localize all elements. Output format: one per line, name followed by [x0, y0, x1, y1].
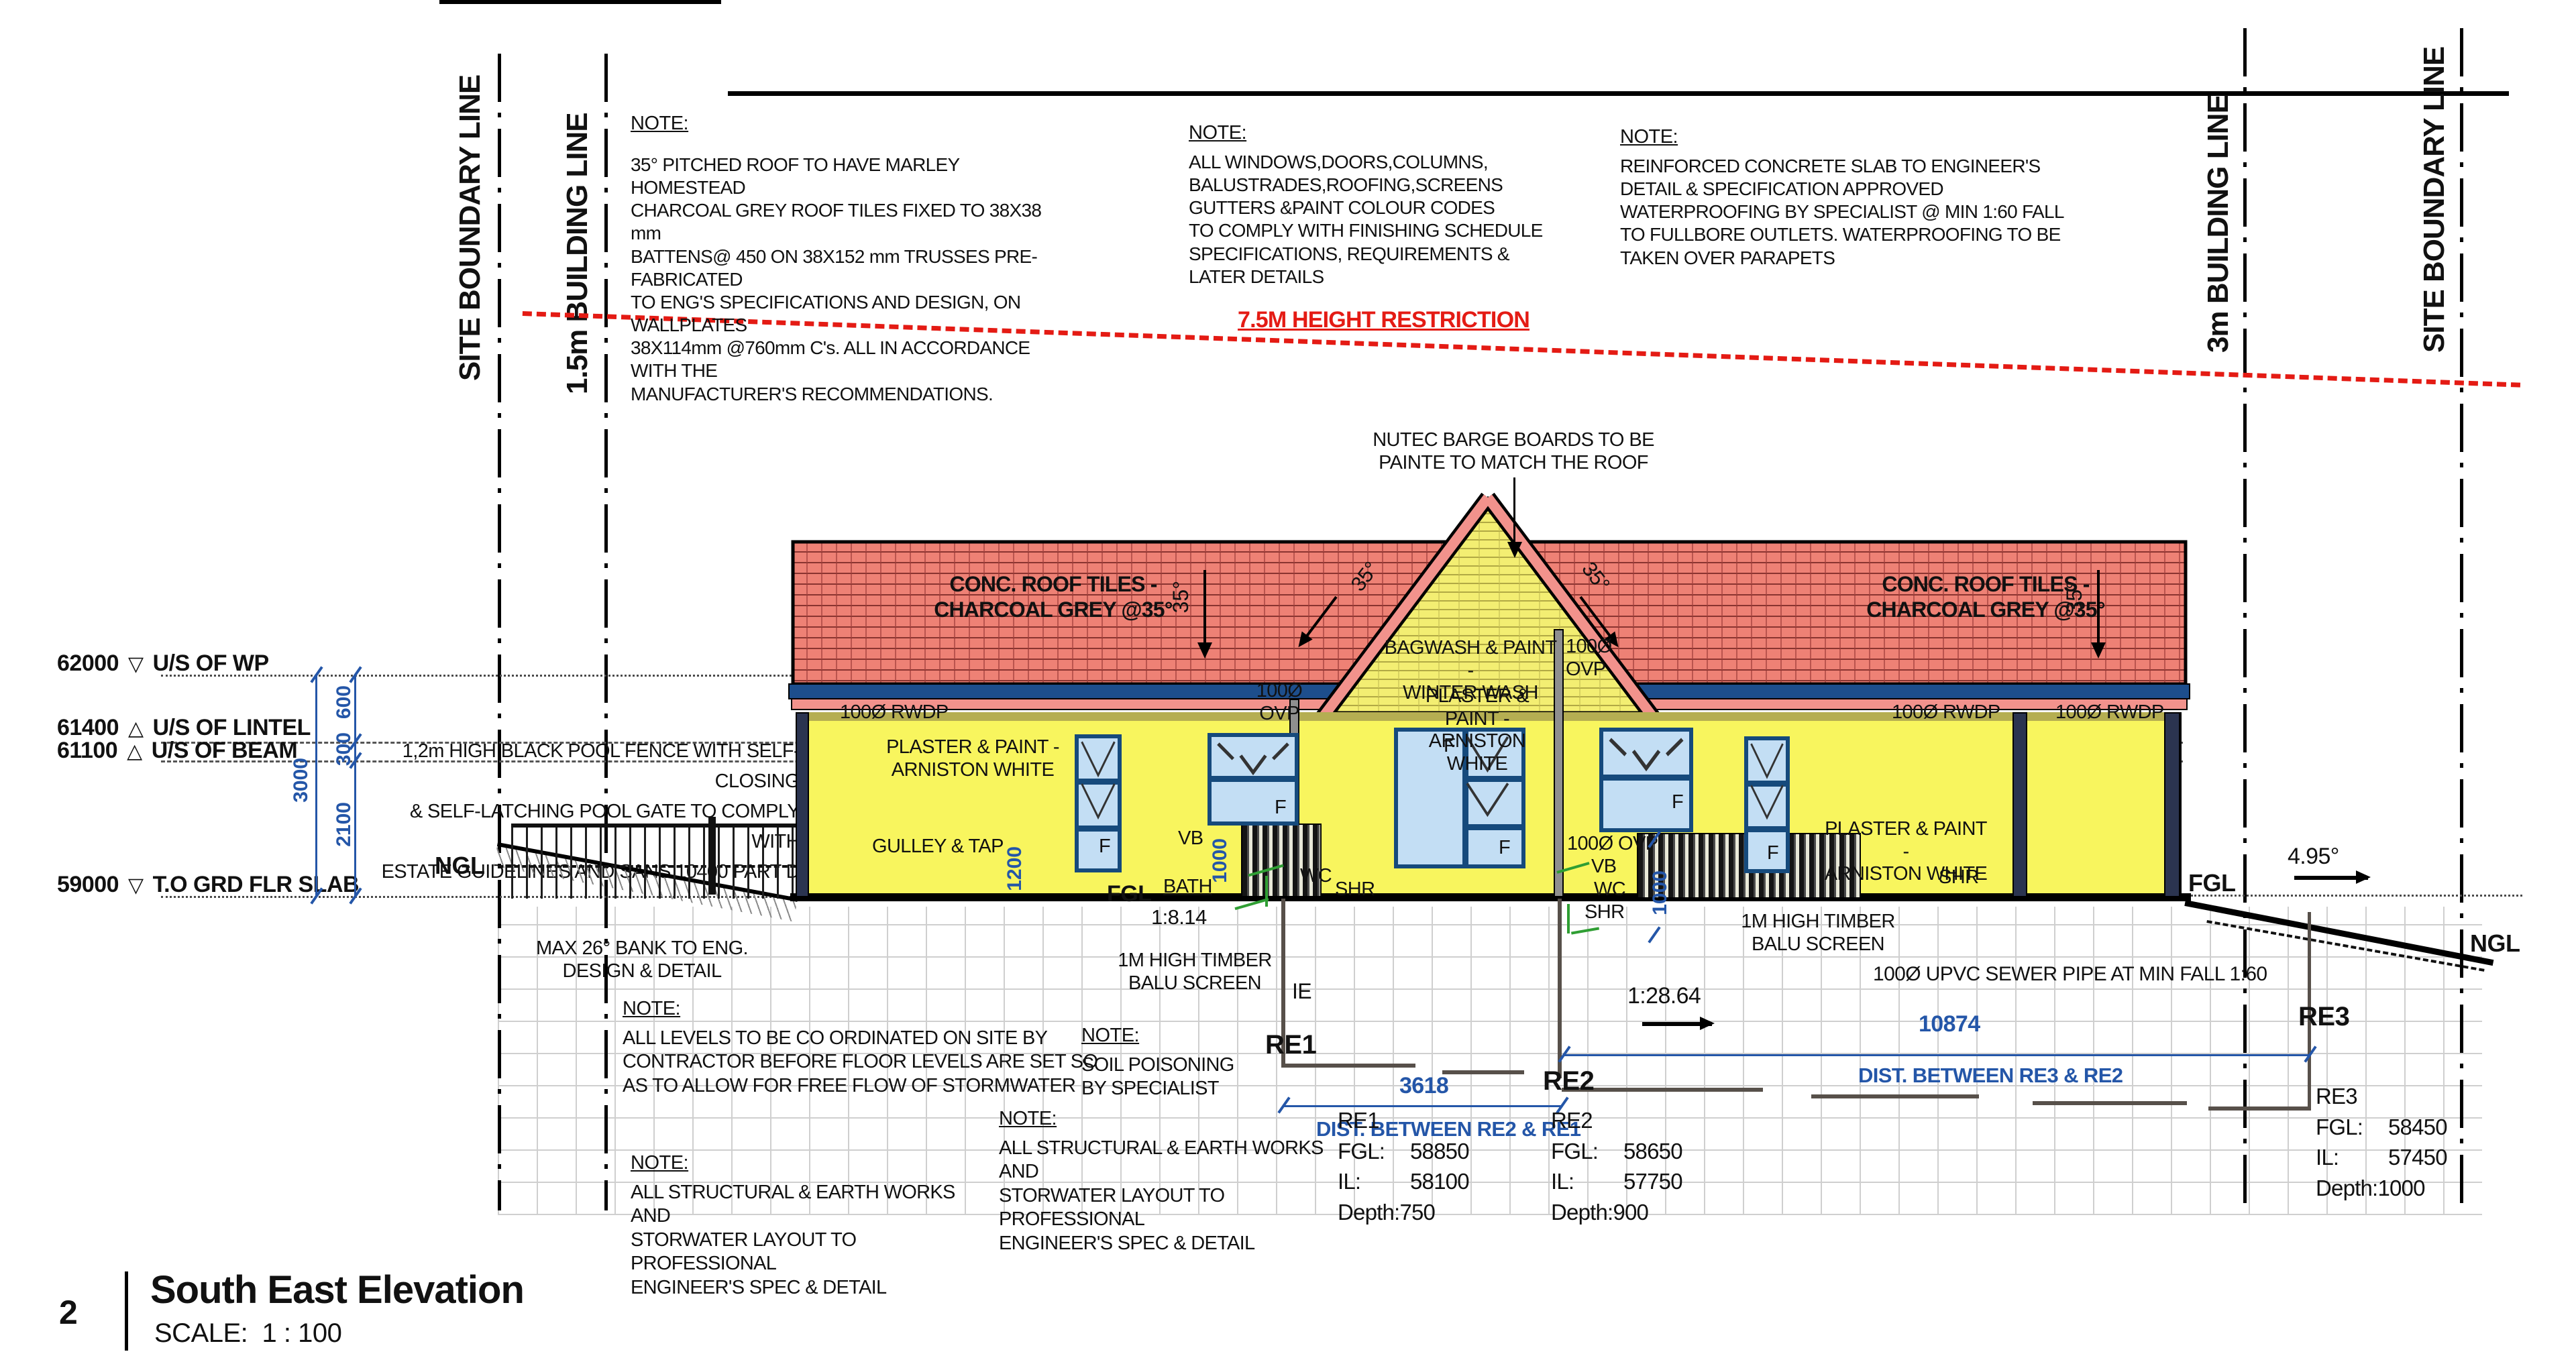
level-label: U/S OF BEAM [152, 738, 297, 763]
ie-label: IE [1292, 979, 1311, 1004]
note-slab-body: REINFORCED CONCRETE SLAB TO ENGINEER'S D… [1620, 155, 2090, 270]
window [1075, 734, 1122, 872]
re-depth: Depth:900 [1551, 1197, 1682, 1228]
building-line-left-label: 1.5m BUILDING LINE [561, 59, 594, 394]
plaster-label-left: PLASTER & PAINT - ARNISTON WHITE [872, 736, 1073, 781]
note-structural-body: ALL STRUCTURAL & EARTH WORKS AND STORWAT… [999, 1137, 1348, 1255]
rwdp-label: 100Ø RWDP [1892, 701, 2000, 724]
ngl-label-left: NGL [435, 852, 485, 880]
note-soil-body: SOIL POISONING BY SPECIALIST [1081, 1054, 1309, 1101]
level-value: 61400 [57, 715, 119, 740]
sewer-run [2208, 1106, 2309, 1111]
opening-mark [1218, 744, 1288, 773]
scale-label: SCALE: [154, 1318, 248, 1348]
building-line-right-label: 3m BUILDING LINE [2202, 31, 2235, 353]
drawing-scale: SCALE: 1 : 100 [154, 1318, 341, 1349]
dim-1200: 1200 [1004, 846, 1026, 891]
ovp-label: 100Ø OVP [1242, 680, 1316, 725]
level-row-wp: 62000▽U/S OF WP [57, 650, 269, 677]
waste-pipe [1265, 876, 1268, 907]
window-f-label: F [1275, 797, 1286, 819]
porch-column-rwdp [2012, 712, 2027, 897]
level-value: 62000 [57, 650, 119, 676]
fall-label: 1:8.14 [1151, 905, 1207, 929]
timber-screen-note: 1M HIGH TIMBER BALU SCREEN [1724, 911, 1912, 956]
roof-label-left: CONC. ROOF TILES - CHARCOAL GREY @35° [926, 571, 1181, 623]
re-il: IL:57750 [1551, 1166, 1682, 1197]
level-value: 61100 [57, 738, 117, 763]
nutec-note: NUTEC BARGE BOARDS TO BE PAINTE TO MATCH… [1373, 429, 1654, 474]
sewer-run [1811, 1094, 1979, 1098]
timber-screen-note: 1M HIGH TIMBER BALU SCREEN [1104, 950, 1285, 995]
elevation-drawing-sheet: SITE BOUNDARY LINE 1.5m BUILDING LINE 3m… [0, 0, 2576, 1362]
level-value: 59000 [57, 872, 119, 897]
window-f-label: F [1767, 842, 1778, 865]
re-name: RE2 [1551, 1105, 1682, 1136]
rwdp-label: 100Ø RWDP [840, 701, 949, 724]
window-f-label: F [1499, 837, 1510, 860]
fgl-line-right [2191, 895, 2522, 897]
arrow-head-icon [1197, 642, 1212, 659]
gulley-tap-label: GULLEY & TAP [872, 836, 1004, 858]
re-il: IL:58100 [1338, 1166, 1469, 1197]
site-boundary-line-left-label: SITE BOUNDARY LINE [453, 59, 487, 381]
note-slab-heading: NOTE: [1620, 126, 2090, 148]
note-structural-heading: NOTE: [631, 1152, 979, 1174]
nutec-leader [1513, 477, 1515, 555]
floor-slab-line [790, 893, 2191, 901]
re-depth: Depth:1000 [2316, 1173, 2447, 1204]
level-label: U/S OF WP [153, 650, 269, 676]
re-marker: RE3 [2298, 1002, 2349, 1032]
level-marker-up-icon: △ [119, 718, 153, 740]
re-fgl: FGL:58450 [2316, 1112, 2447, 1143]
window [1599, 728, 1693, 832]
note-levels-heading: NOTE: [623, 998, 1106, 1020]
dim-300: 300 [333, 732, 356, 766]
plaster-label-center: PLASTER & PAINT - ARNISTON WHITE [1397, 685, 1558, 776]
fence-post [708, 817, 716, 895]
level-row-beam: 61100△U/S OF BEAM [57, 738, 297, 764]
re2-data: RE2 FGL:58650 IL:57750 Depth:900 [1551, 1105, 1682, 1227]
note-roof: NOTE: 35° PITCHED ROOF TO HAVE MARLEY HO… [631, 113, 1073, 406]
note-windows-heading: NOTE: [1189, 122, 1578, 144]
dim-line-3000 [315, 675, 317, 896]
arrow-head-icon [1507, 542, 1522, 558]
shr-label: SHR [1585, 901, 1624, 924]
porch-column-rwdp [2164, 712, 2180, 897]
opening-mark [1751, 744, 1782, 817]
dim-1000: 1000 [1649, 870, 1672, 915]
arrow-head-icon [2356, 870, 2371, 884]
drawing-title: South East Elevation [150, 1267, 524, 1312]
note-roof-heading: NOTE: [631, 113, 1073, 135]
ovp-label: 100Ø OVP [1566, 636, 1633, 681]
max-bank-note: MAX 26° BANK TO ENG. DESIGN & DETAIL [498, 938, 786, 982]
fall-label: 1:28.64 [1627, 983, 1701, 1009]
site-boundary-line-left [498, 54, 501, 1210]
opening-mark [1610, 740, 1682, 769]
ovp-label: 100Ø OVP [1567, 833, 1658, 856]
level-label: T.O GRD FLR SLAB [153, 872, 359, 897]
title-divider [125, 1271, 128, 1351]
sheet-border-top-left [439, 0, 721, 4]
height-restriction-label: 7.5M HEIGHT RESTRICTION [1238, 307, 1529, 333]
sewer-riser [1558, 899, 1562, 1078]
wc-label: WC [1300, 865, 1332, 888]
re-marker: RE2 [1543, 1066, 1594, 1096]
dim-3000: 3000 [290, 758, 313, 803]
site-boundary-line-right [2460, 28, 2463, 1210]
site-boundary-line-right-label: SITE BOUNDARY LINE [2418, 31, 2451, 353]
dim-2100: 2100 [333, 802, 356, 847]
dim-10874: 10874 [1919, 1011, 1980, 1037]
ngl-label-right: NGL [2470, 929, 2520, 958]
note-soil: NOTE: SOIL POISONING BY SPECIALIST [1081, 1025, 1309, 1101]
note-windows-body: ALL WINDOWS,DOORS,COLUMNS, BALUSTRADES,R… [1189, 151, 1578, 288]
level-marker-down-icon: ▽ [119, 653, 153, 675]
roof-pitch-label: 35° [1169, 581, 1193, 613]
wc-label: WC [1594, 878, 1625, 901]
note-soil-heading: NOTE: [1081, 1025, 1309, 1047]
arrow-head-icon [2091, 642, 2106, 659]
re-fgl: FGL:58850 [1338, 1136, 1469, 1167]
level-marker-up-icon: △ [117, 740, 152, 762]
roof-pitch-label: 35° [2062, 581, 2087, 613]
fgl-label: FGL [2188, 869, 2235, 897]
dim-600: 600 [333, 685, 356, 719]
building-line-left [604, 54, 608, 1210]
opening-mark [1082, 742, 1115, 817]
level-row-slab: 59000▽T.O GRD FLR SLAB [57, 872, 359, 898]
porch-post-left [796, 712, 809, 897]
arrow-head-icon [1700, 1017, 1715, 1030]
note-levels: NOTE: ALL LEVELS TO BE CO ORDINATED ON S… [623, 998, 1106, 1098]
note-structural-1: NOTE: ALL STRUCTURAL & EARTH WORKS AND S… [631, 1152, 979, 1300]
vb-label: VB [1591, 856, 1617, 878]
re-il: IL:57450 [2316, 1142, 2447, 1173]
sewer-run [2033, 1101, 2187, 1105]
dist-re3-re2: DIST. BETWEEN RE3 & RE2 [1858, 1064, 2123, 1088]
note-structural-heading: NOTE: [999, 1108, 1348, 1130]
dim-3618: 3618 [1399, 1073, 1448, 1099]
sheet-number: 2 [59, 1293, 78, 1332]
pitch-arrow [1203, 570, 1206, 656]
vb-label: VB [1178, 828, 1203, 850]
scale-value: 1 : 100 [262, 1318, 342, 1348]
slope-arrow [2294, 876, 2368, 880]
pitch-arrow [2097, 570, 2100, 656]
note-windows: NOTE: ALL WINDOWS,DOORS,COLUMNS, BALUSTR… [1189, 122, 1578, 288]
note-structural-2: NOTE: ALL STRUCTURAL & EARTH WORKS AND S… [999, 1108, 1348, 1255]
dim-1000: 1000 [1209, 838, 1232, 883]
level-label: U/S OF LINTEL [153, 715, 311, 740]
fall-arrow [1642, 1022, 1712, 1026]
sewer-note: 100Ø UPVC SEWER PIPE AT MIN FALL 1:60 [1873, 963, 2267, 986]
note-slab: NOTE: REINFORCED CONCRETE SLAB TO ENGINE… [1620, 126, 2090, 270]
re-name: RE3 [2316, 1081, 2447, 1112]
re3-data: RE3 FGL:58450 IL:57450 Depth:1000 [2316, 1081, 2447, 1203]
level-marker-down-icon: ▽ [119, 874, 153, 897]
fgl-label: FGL [1107, 881, 1151, 907]
window-f-label: F [1099, 836, 1110, 858]
sheet-border-top [728, 91, 2509, 96]
note-roof-body: 35° PITCHED ROOF TO HAVE MARLEY HOMESTEA… [631, 154, 1073, 406]
note-levels-body: ALL LEVELS TO BE CO ORDINATED ON SITE BY… [623, 1027, 1106, 1098]
shr-label: SHR [1939, 866, 1978, 889]
rwdp-label: 100Ø RWDP [2055, 701, 2164, 724]
re-fgl: FGL:58650 [1551, 1136, 1682, 1167]
slope-label: 4.95° [2288, 844, 2339, 870]
dim-line-10874 [1563, 1054, 2309, 1056]
bath-label: BATH [1163, 876, 1212, 899]
re-depth: Depth:750 [1338, 1197, 1469, 1228]
note-structural-body: ALL STRUCTURAL & EARTH WORKS AND STORWAT… [631, 1181, 979, 1300]
re-name: RE1 [1338, 1105, 1469, 1136]
sewer-run [1442, 1070, 1524, 1074]
building-line-right [2243, 28, 2247, 1210]
window-f-label: F [1672, 791, 1683, 814]
re1-data: RE1 FGL:58850 IL:58100 Depth:750 [1338, 1105, 1469, 1227]
waste-pipe [1567, 904, 1570, 933]
shr-label: SHR [1335, 878, 1375, 901]
